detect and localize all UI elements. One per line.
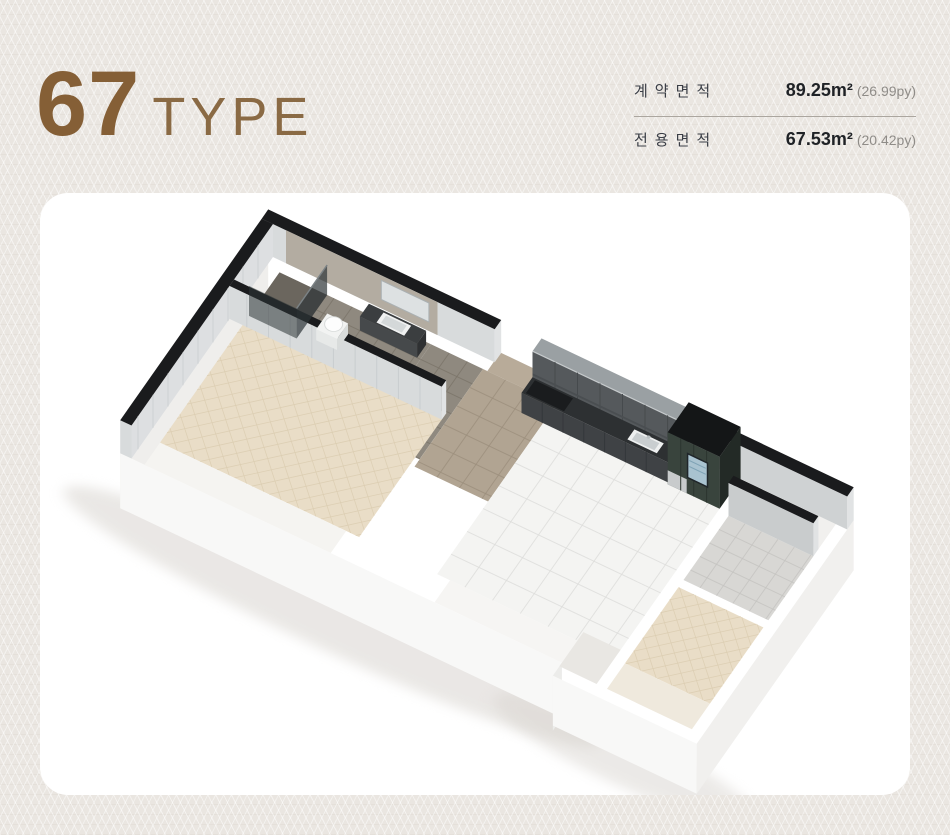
- exclusive-area-label: 전용면적: [634, 129, 717, 150]
- plan-title: 67 TYPE: [36, 58, 313, 150]
- plan-type-label: TYPE: [152, 90, 313, 144]
- contract-area-row: 계약면적 89.25m²(26.99py): [634, 80, 916, 106]
- contract-area-label: 계약면적: [634, 80, 717, 101]
- exclusive-area-value: 67.53m²(20.42py): [786, 129, 916, 150]
- floorplan-card: [40, 193, 910, 795]
- contract-area-value: 89.25m²(26.99py): [786, 80, 916, 101]
- area-table: 계약면적 89.25m²(26.99py) 전용면적 67.53m²(20.42…: [634, 80, 916, 155]
- brochure-page: 67 TYPE 계약면적 89.25m²(26.99py) 전용면적 67.53…: [0, 0, 950, 835]
- area-table-divider: [634, 116, 916, 117]
- floorplan-rendering: [40, 193, 910, 795]
- plan-number: 67: [36, 58, 140, 150]
- exclusive-area-row: 전용면적 67.53m²(20.42py): [634, 129, 916, 155]
